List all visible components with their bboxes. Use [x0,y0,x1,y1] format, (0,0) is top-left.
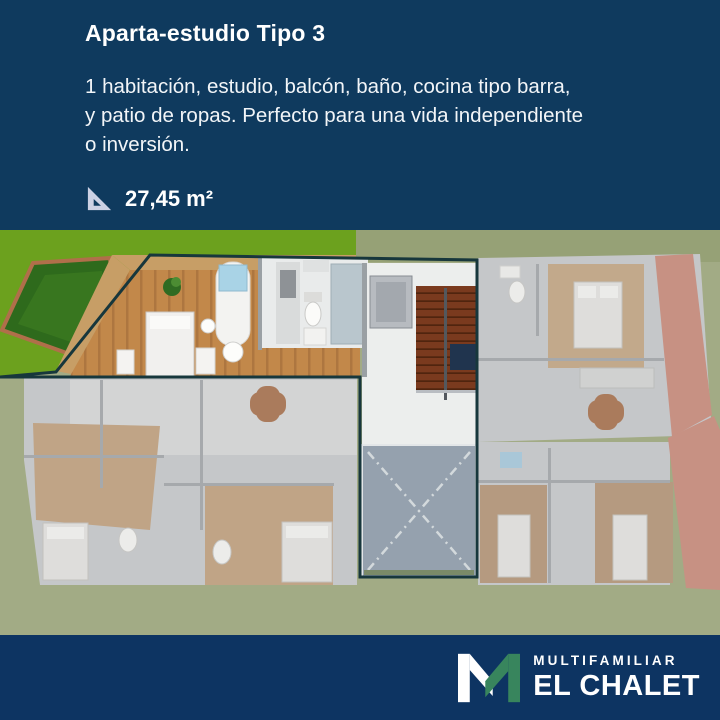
brand-text: MULTIFAMILIAR EL CHALET [533,654,700,702]
unit-description: 1 habitación, estudio, balcón, baño, coc… [85,72,583,159]
dimmed-units-lower-right [478,416,720,590]
description-line: 1 habitación, estudio, balcón, baño, coc… [85,72,583,101]
patio-void [362,445,476,577]
bathroom [258,258,368,350]
set-square-icon [85,184,114,213]
m-letter-white [458,653,493,701]
description-line: y patio de ropas. Perfecto para una vida… [85,101,583,130]
brand-bottom-label: EL CHALET [533,672,700,701]
description-line: o inversión. [85,130,583,159]
header: Aparta-estudio Tipo 3 1 habitación, estu… [0,0,720,230]
area-value: 27,45 m² [125,186,213,212]
dimmed-units-upper-right [478,254,712,442]
stairwell [362,263,477,445]
brand-top-label: MULTIFAMILIAR [533,654,677,668]
dimmed-units-lower-left [24,377,357,585]
area-row: 27,45 m² [85,184,213,213]
floor-plan-image [0,230,720,635]
footer: MULTIFAMILIAR EL CHALET [0,635,720,720]
page-title: Aparta-estudio Tipo 3 [85,20,325,47]
flyer-card: Aparta-estudio Tipo 3 1 habitación, estu… [0,0,720,720]
floor-plan-render [0,230,720,635]
brand-m-logo [458,649,520,707]
m-letter-green [486,653,521,701]
